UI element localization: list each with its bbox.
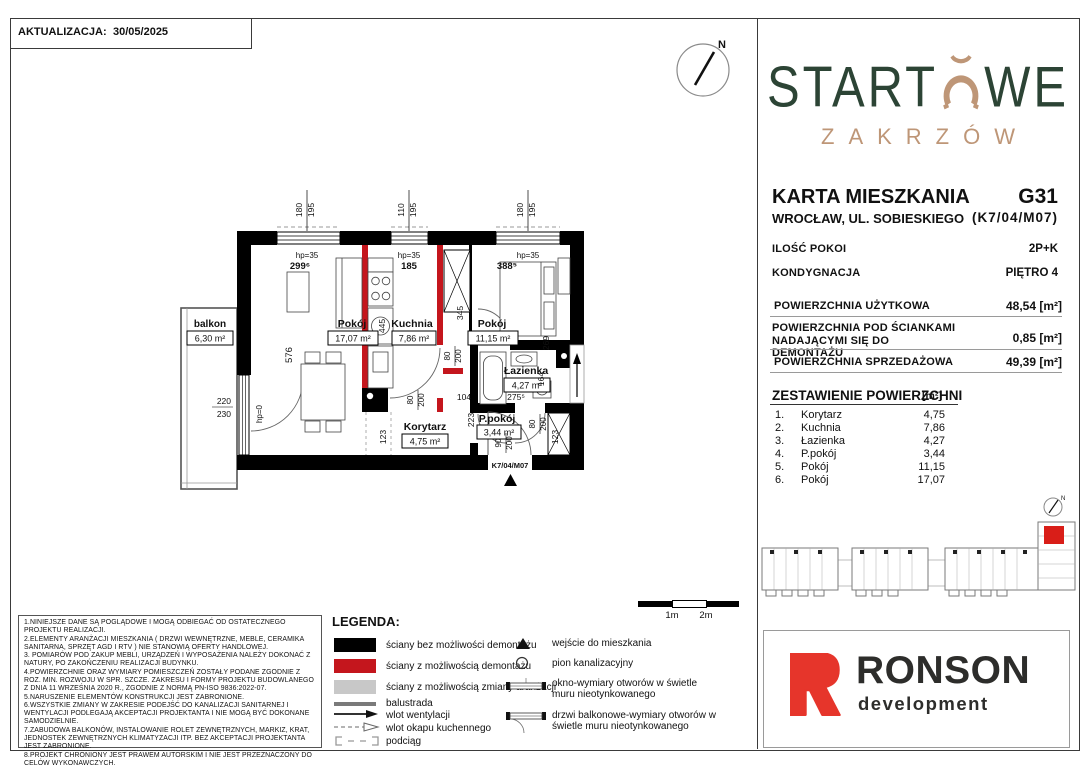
room-name-pokoj-1: Pokój bbox=[338, 318, 367, 330]
dim-door-kitchen-h: 200 bbox=[417, 393, 426, 407]
legend-title: LEGENDA: bbox=[332, 614, 400, 629]
apartment-card-page: AKTUALIZACJA: 30/05/2025 N bbox=[0, 0, 1087, 768]
dim-kitchen-w: 185 bbox=[401, 261, 418, 272]
dim-door-kitchen-w: 80 bbox=[406, 395, 415, 404]
legend-label: pion kanalizacyjny bbox=[552, 658, 633, 669]
row-no: 1. bbox=[775, 409, 784, 421]
row-name: Pokój bbox=[801, 461, 829, 473]
row-no: 5. bbox=[775, 461, 784, 473]
room-name-kuchnia: Kuchnia bbox=[391, 318, 433, 330]
dim-door-bath-w: 80 bbox=[528, 419, 537, 428]
developer-name: RONSON bbox=[856, 649, 1030, 693]
row-no: 3. bbox=[775, 435, 784, 447]
legend-swatch-gray bbox=[334, 680, 376, 694]
unit-ref: (K7/04/M07) bbox=[900, 210, 1058, 225]
row-name: Kuchnia bbox=[801, 422, 841, 434]
vent-arrow-icon bbox=[334, 709, 380, 719]
dim-104: 104 bbox=[457, 392, 471, 402]
row-name: Korytarz bbox=[801, 409, 842, 421]
disclaimer-line: 1.NINIEJSZE DANE SĄ POGLĄDOWE I MOGĄ ODB… bbox=[24, 619, 316, 636]
dim-balc-h: 230 bbox=[217, 409, 231, 419]
update-date: 30/05/2025 bbox=[113, 26, 168, 38]
dim-door-entry-h: 200 bbox=[505, 436, 514, 450]
room-area-pokoj-1: 17,07 m² bbox=[335, 334, 371, 344]
scale-2m: 2m bbox=[692, 610, 720, 621]
update-box: AKTUALIZACJA: 30/05/2025 bbox=[10, 18, 252, 49]
dim-win2-h: 195 bbox=[408, 203, 418, 217]
dim-123-right: 123 bbox=[550, 430, 560, 444]
hood-arrow-icon bbox=[334, 722, 380, 732]
dim-hp35-3: hp=35 bbox=[517, 251, 540, 260]
wardrobe-box bbox=[444, 250, 470, 312]
legend-label: wlot okapu kuchennego bbox=[386, 723, 491, 734]
balcony-door-symbol bbox=[239, 375, 303, 455]
dim-hall-h: 345 bbox=[455, 306, 465, 320]
logo-subtitle: ZAKRZÓW bbox=[807, 124, 1029, 150]
room-name-balkon: balkon bbox=[194, 319, 226, 330]
compass-needle bbox=[695, 52, 714, 85]
row-area: 7,86 bbox=[880, 422, 945, 434]
disclaimer-box: 1.NINIEJSZE DANE SĄ POGLĄDOWE I MOGĄ ODB… bbox=[18, 615, 322, 748]
site-plan-map: N bbox=[758, 492, 1080, 624]
vent-inlet bbox=[570, 345, 584, 403]
room-name-pokoj-2: Pokój bbox=[478, 318, 507, 330]
legend-label: podciąg bbox=[386, 736, 421, 747]
stove bbox=[368, 272, 393, 306]
legend-label: ściany z możliwością demontażu bbox=[386, 661, 531, 672]
divider bbox=[770, 372, 1062, 373]
dim-223: 223 bbox=[466, 413, 476, 427]
dim-balc-w: 220 bbox=[217, 396, 231, 406]
room-area-pokoj-2: 11,15 m² bbox=[476, 334, 511, 344]
developer-subtitle: development bbox=[858, 693, 989, 715]
dim-275: 275⁵ bbox=[507, 392, 525, 402]
legend-label: balustrada bbox=[386, 698, 433, 709]
dim-door-bath-h: 200 bbox=[539, 417, 548, 431]
mini-compass-north: N bbox=[1061, 496, 1065, 502]
legend-label: wlot wentylacji bbox=[386, 710, 450, 721]
dim-room2-w: 388⁵ bbox=[497, 261, 517, 272]
dim-123-left: 123 bbox=[378, 430, 388, 444]
row-no: 2. bbox=[775, 422, 784, 434]
room-area-ppokoj: 3,44 m² bbox=[484, 428, 515, 438]
floor-value: PIĘTRO 4 bbox=[900, 267, 1058, 279]
legend-label: okno-wymiary otworów w świetle muru nieo… bbox=[552, 678, 722, 700]
room-table-unit: [m²] bbox=[922, 390, 942, 402]
rooms-count-value: 2P+K bbox=[900, 243, 1058, 255]
divider bbox=[770, 404, 958, 405]
dim-hp0: hp=0 bbox=[255, 404, 264, 423]
dim-door-hall-h: 200 bbox=[454, 349, 463, 363]
row-no: 4. bbox=[775, 448, 784, 460]
compass-north-label: N bbox=[718, 39, 726, 51]
disclaimer-line: 6.WSZYSTKIE ZMIANY W ZAKRESIE PODEJŚĆ DO… bbox=[24, 702, 316, 727]
sewage-stack-icon bbox=[367, 393, 373, 399]
disclaimer-line: 2.ELEMENTY ARANŻACJI MIESZKANIA ( DRZWI … bbox=[24, 636, 316, 653]
disclaimer-line: 5.NARUSZENIE ELEMENTÓW KONSTRUKCJI JEST … bbox=[24, 694, 316, 702]
row-no: 6. bbox=[775, 474, 784, 486]
entrance-code: K7/04/M07 bbox=[492, 461, 529, 470]
sewage-stack-circle-icon bbox=[515, 656, 529, 670]
row-area: 4,27 bbox=[880, 435, 945, 447]
dim-win3-w: 180 bbox=[515, 203, 525, 217]
balustrade-line-icon bbox=[334, 702, 376, 706]
dim-win3-h: 195 bbox=[527, 203, 537, 217]
room-area-kuchnia: 7,86 m² bbox=[399, 334, 430, 344]
row-area: 17,07 bbox=[880, 474, 945, 486]
dim-hp35-1: hp=35 bbox=[296, 251, 319, 260]
legend-swatch-black bbox=[334, 638, 376, 652]
entrance-triangle bbox=[504, 474, 517, 486]
divider bbox=[770, 349, 1062, 350]
disclaimer-line: 7.ZABUDOWA BALKONÓW, INSTALOWANIE ROLET … bbox=[24, 727, 316, 752]
legend-swatch-red bbox=[334, 659, 376, 673]
disclaimer-line: 4.POWIERZCHNIE ORAZ WYMIARY POMIESZCZEŃ … bbox=[24, 669, 316, 694]
partition-area-value: 0,85 [m²] bbox=[900, 331, 1062, 345]
disclaimer-line: 3. POMIARÓW POD ZAKUP MEBLI, URZĄDZEŃ I … bbox=[24, 652, 316, 669]
row-name: Łazienka bbox=[801, 435, 845, 447]
compass: N bbox=[668, 28, 746, 106]
dim-room1-w: 299⁶ bbox=[290, 261, 310, 272]
row-area: 11,15 bbox=[880, 461, 945, 473]
dim-room1-h: 576 bbox=[284, 347, 295, 363]
logo-text-we: WE bbox=[984, 59, 1069, 117]
beam-dashed-icon bbox=[334, 735, 380, 747]
dim-kitchen-h: 445 bbox=[377, 319, 387, 333]
ronson-r-icon bbox=[790, 653, 842, 717]
sales-area-value: 49,39 [m²] bbox=[900, 355, 1062, 369]
divider bbox=[770, 316, 1062, 317]
entrance-triangle-icon bbox=[514, 636, 532, 650]
update-label: AKTUALIZACJA: bbox=[18, 26, 107, 38]
legend-label: wejście do mieszkania bbox=[552, 638, 652, 649]
dim-room2-h: 269 bbox=[541, 336, 551, 350]
dim-164: 164 bbox=[536, 372, 546, 386]
dim-win1-w: 180 bbox=[294, 203, 304, 217]
dim-door-hall-w: 80 bbox=[443, 351, 452, 360]
disclaimer-line: 8.PROJEKT CHRONIONY JEST PRAWEM AUTORSKI… bbox=[24, 752, 316, 768]
dining-table bbox=[301, 364, 345, 420]
developer-box: RONSON development bbox=[763, 630, 1070, 748]
room-name-korytarz: Korytarz bbox=[404, 421, 447, 433]
legend-label: drzwi balkonowe-wymiary otworów w świetl… bbox=[552, 710, 722, 732]
balcony-door-symbol-icon bbox=[506, 708, 546, 734]
scale-1m: 1m bbox=[658, 610, 686, 621]
desk bbox=[287, 272, 309, 312]
dim-win2-w: 110 bbox=[396, 203, 406, 217]
room-name-ppokoj: P.pokój bbox=[479, 413, 516, 425]
row-name: Pokój bbox=[801, 474, 829, 486]
room-area-balkon: 6,30 m² bbox=[195, 334, 226, 344]
usable-area-value: 48,54 [m²] bbox=[900, 299, 1062, 313]
row-name: P.pokój bbox=[801, 448, 836, 460]
window-symbol-icon bbox=[506, 678, 546, 694]
room-area-korytarz: 4,75 m² bbox=[410, 437, 441, 447]
logo-o-glyph-icon bbox=[940, 49, 982, 115]
floor-plan: K7/04/M07 balkon 6,30 m² Pokój 17,07 m² … bbox=[165, 158, 640, 508]
row-area: 3,44 bbox=[880, 448, 945, 460]
brand-logo: START WE ZAKRZÓW bbox=[758, 26, 1078, 178]
unit-code: G31 bbox=[900, 185, 1058, 209]
highlighted-unit bbox=[1044, 526, 1064, 544]
sewage-stack-icon bbox=[561, 353, 567, 359]
rooms-count-label: ILOŚĆ POKOI bbox=[772, 243, 846, 255]
floor-label: KONDYGNACJA bbox=[772, 267, 860, 279]
row-area: 4,75 bbox=[880, 409, 945, 421]
dim-door-entry-w: 90 bbox=[494, 438, 503, 447]
dim-hp35-2: hp=35 bbox=[398, 251, 421, 260]
logo-text-start: START bbox=[767, 59, 938, 117]
dim-win1-h: 195 bbox=[306, 203, 316, 217]
